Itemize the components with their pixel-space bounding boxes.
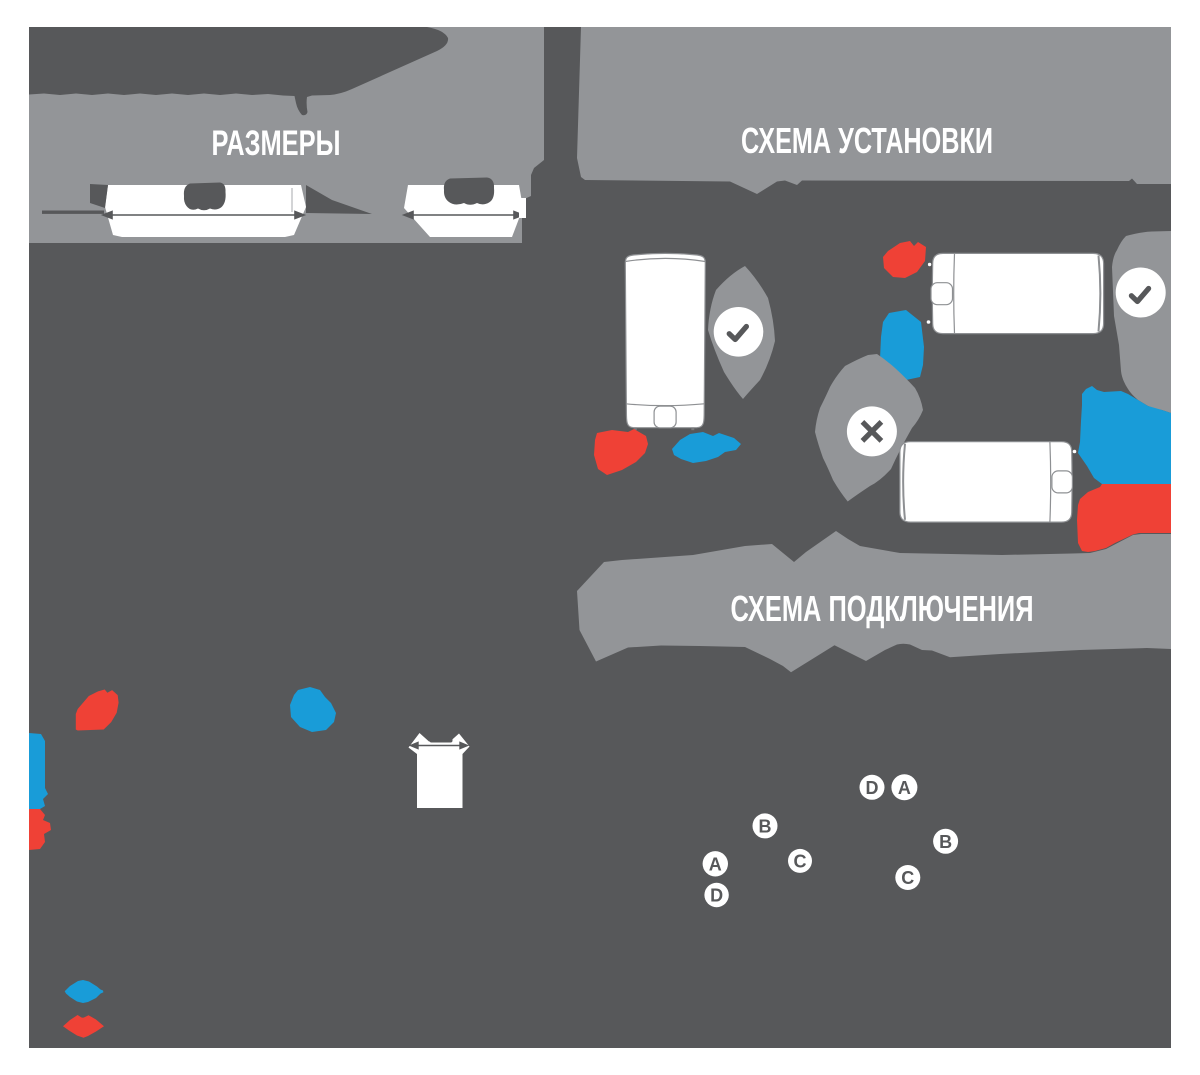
- svg-text:C: C: [901, 868, 914, 888]
- svg-text:B: B: [759, 816, 772, 836]
- svg-text:A: A: [709, 854, 722, 874]
- svg-text:СХЕМА УСТАНОВКИ: СХЕМА УСТАНОВКИ: [741, 120, 993, 161]
- svg-text:A: A: [898, 778, 911, 798]
- svg-text:СХЕМА ПОДКЛЮЧЕНИЯ: СХЕМА ПОДКЛЮЧЕНИЯ: [731, 588, 1034, 629]
- svg-text:B: B: [939, 832, 952, 852]
- svg-text:C: C: [794, 851, 807, 871]
- svg-text:РАЗМЕРЫ: РАЗМЕРЫ: [212, 124, 341, 163]
- svg-text:D: D: [710, 886, 723, 906]
- svg-text:D: D: [866, 778, 879, 798]
